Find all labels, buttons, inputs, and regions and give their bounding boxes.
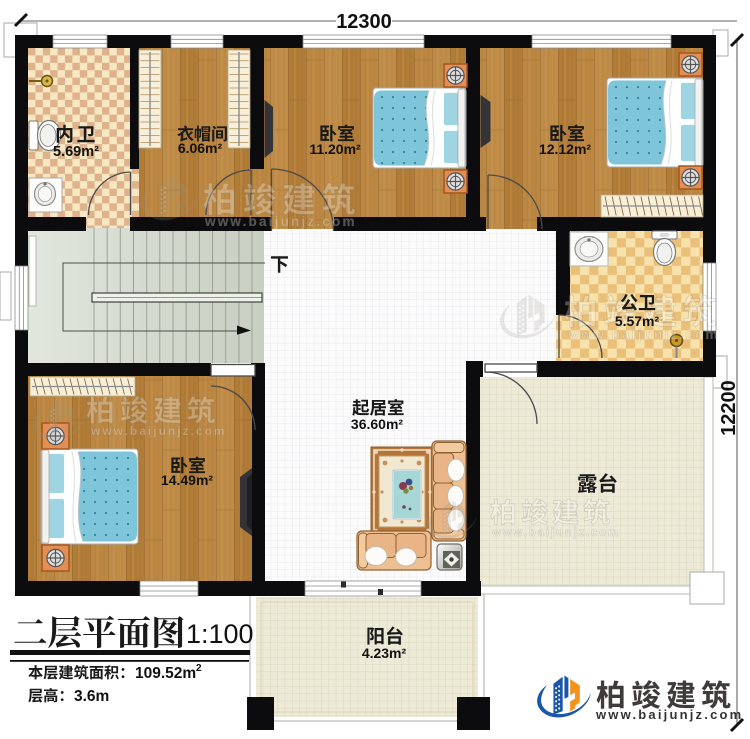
svg-text:3.6m: 3.6m	[74, 688, 109, 705]
svg-text:4.23m²: 4.23m²	[362, 645, 407, 661]
svg-text:www.baijunjz.com: www.baijunjz.com	[204, 214, 357, 229]
svg-text:11.20m²: 11.20m²	[309, 141, 361, 157]
svg-text:www.baijunjz.com: www.baijunjz.com	[567, 327, 720, 342]
svg-text:12200: 12200	[718, 380, 740, 436]
svg-text:109.52m: 109.52m	[135, 665, 196, 682]
svg-text:5.69m²: 5.69m²	[53, 144, 99, 160]
svg-text:www.baijunjz.com: www.baijunjz.com	[90, 424, 227, 438]
svg-text:5.57m²: 5.57m²	[615, 313, 660, 329]
svg-text:6.06m²: 6.06m²	[178, 140, 223, 156]
svg-text:2: 2	[196, 663, 202, 674]
svg-text:1:100: 1:100	[186, 619, 254, 649]
svg-text:www.baijunjz.com: www.baijunjz.com	[595, 707, 743, 722]
svg-text:36.60m²: 36.60m²	[351, 416, 403, 432]
svg-text:12300: 12300	[336, 11, 392, 33]
svg-text:12.12m²: 12.12m²	[539, 141, 591, 157]
svg-text:www.baijunjz.com: www.baijunjz.com	[491, 527, 620, 539]
svg-text:14.49m²: 14.49m²	[161, 472, 213, 488]
